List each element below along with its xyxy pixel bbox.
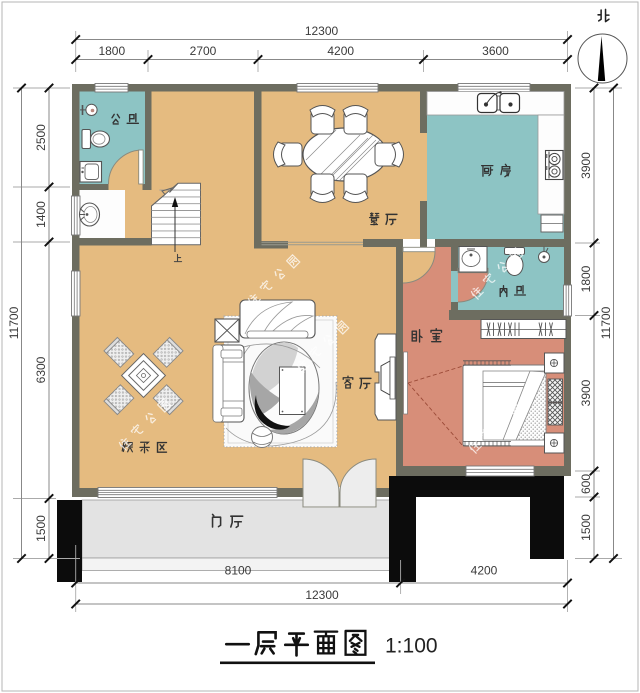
- svg-text:8100: 8100: [225, 564, 252, 578]
- svg-text:3600: 3600: [482, 44, 509, 58]
- svg-text:1500: 1500: [34, 515, 48, 542]
- svg-text:2700: 2700: [190, 44, 217, 58]
- svg-text:3900: 3900: [579, 152, 593, 179]
- svg-text:1800: 1800: [98, 44, 125, 58]
- svg-text:4200: 4200: [327, 44, 354, 58]
- svg-text:11700: 11700: [599, 306, 613, 339]
- svg-text:1400: 1400: [34, 201, 48, 228]
- svg-text:1500: 1500: [579, 514, 593, 541]
- svg-text:11700: 11700: [7, 306, 21, 339]
- svg-text:1:100: 1:100: [385, 635, 438, 658]
- svg-text:600: 600: [579, 474, 593, 494]
- svg-text:1800: 1800: [579, 265, 593, 292]
- svg-text:3900: 3900: [579, 379, 593, 406]
- svg-text:6300: 6300: [34, 356, 48, 383]
- svg-text:2500: 2500: [34, 124, 48, 151]
- svg-text:12300: 12300: [305, 24, 339, 38]
- svg-text:12300: 12300: [305, 588, 339, 602]
- svg-text:4200: 4200: [471, 564, 498, 578]
